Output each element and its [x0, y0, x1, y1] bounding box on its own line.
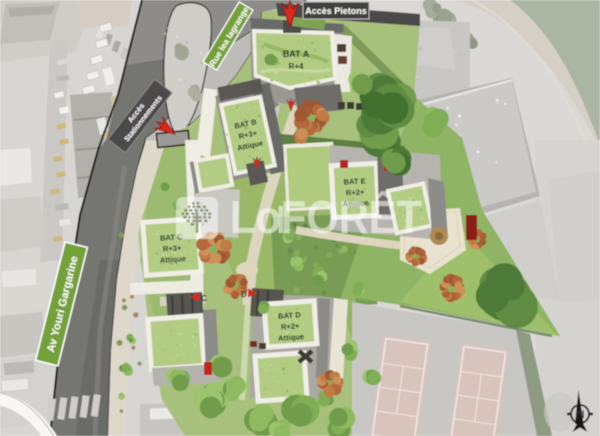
svg-text:R+4: R+4	[289, 62, 304, 71]
svg-text:R+3+: R+3+	[163, 243, 183, 253]
svg-text:C: C	[201, 294, 207, 303]
svg-text:Accès Pietons: Accès Pietons	[305, 6, 367, 16]
svg-text:D: D	[241, 290, 247, 299]
svg-text:LoFORÊT: LoFORÊT	[230, 191, 422, 243]
svg-text:Attique: Attique	[278, 332, 305, 343]
svg-text:BAT D: BAT D	[278, 310, 302, 321]
svg-text:Attique: Attique	[160, 254, 187, 265]
svg-text:N: N	[577, 409, 585, 421]
svg-text:R+2+: R+2+	[281, 321, 301, 331]
svg-text:BAT E: BAT E	[343, 176, 366, 186]
svg-text:BAT A: BAT A	[283, 49, 310, 59]
